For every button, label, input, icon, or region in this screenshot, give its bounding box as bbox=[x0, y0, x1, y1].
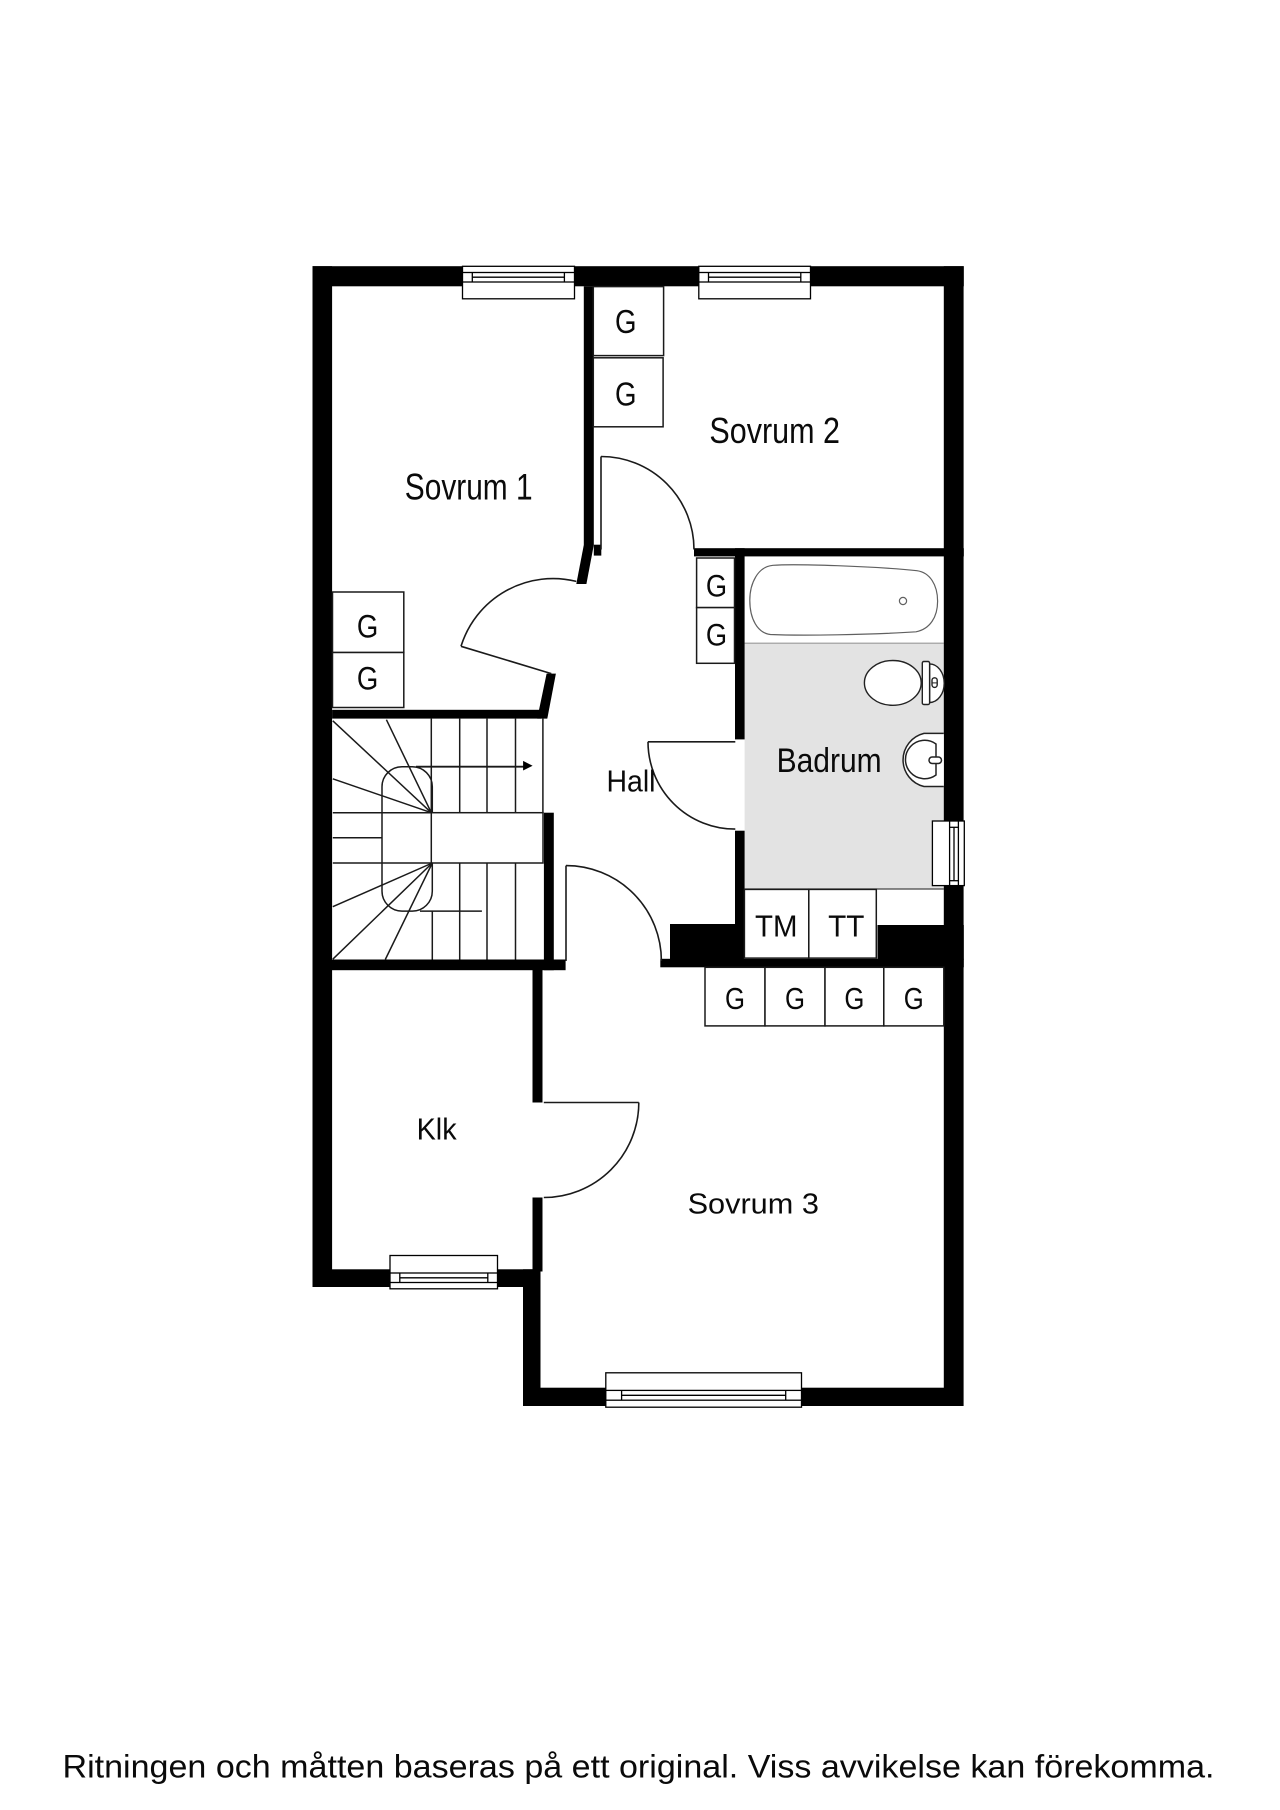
svg-text:G: G bbox=[706, 616, 727, 652]
svg-text:TT: TT bbox=[828, 908, 864, 943]
svg-text:G: G bbox=[615, 303, 637, 340]
svg-text:Sovrum 2: Sovrum 2 bbox=[709, 410, 840, 451]
svg-text:Hall: Hall bbox=[607, 765, 656, 799]
svg-text:G: G bbox=[844, 981, 864, 1016]
svg-text:Sovrum 3: Sovrum 3 bbox=[688, 1189, 819, 1221]
svg-text:G: G bbox=[725, 981, 745, 1016]
svg-text:G: G bbox=[357, 608, 378, 644]
svg-text:G: G bbox=[357, 661, 378, 697]
svg-text:TM: TM bbox=[755, 908, 798, 943]
svg-text:Badrum: Badrum bbox=[777, 742, 882, 780]
svg-text:G: G bbox=[615, 376, 637, 413]
svg-text:G: G bbox=[706, 567, 727, 603]
svg-text:G: G bbox=[904, 981, 924, 1016]
svg-text:Sovrum 1: Sovrum 1 bbox=[405, 465, 533, 507]
svg-text:G: G bbox=[785, 981, 805, 1016]
svg-text:Klk: Klk bbox=[417, 1111, 457, 1146]
svg-text:Ritningen och måtten baseras p: Ritningen och måtten baseras på ett orig… bbox=[63, 1748, 1215, 1785]
